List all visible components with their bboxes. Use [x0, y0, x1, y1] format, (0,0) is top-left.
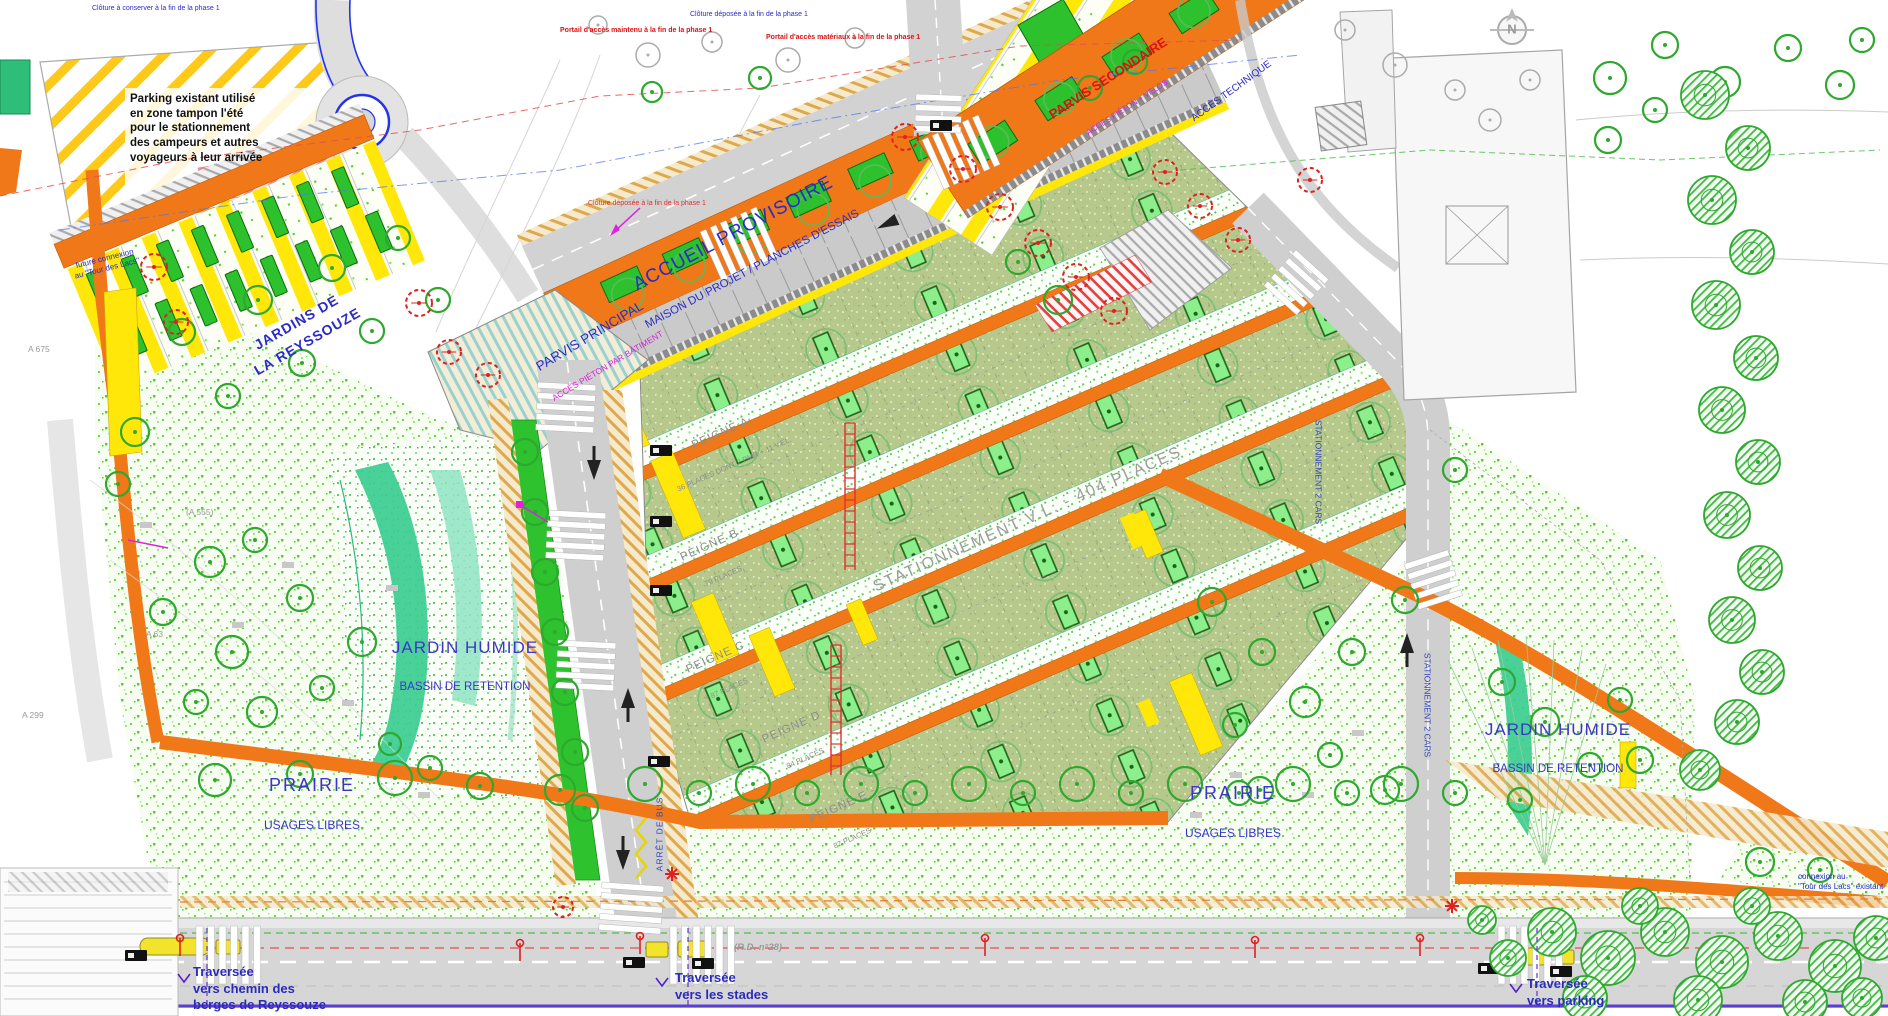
site-plan-canvas[interactable] — [0, 0, 1888, 1016]
north-arrow-icon — [1490, 8, 1534, 44]
site-plan-page: Parking existant utilisé en zone tampon … — [0, 0, 1888, 1016]
